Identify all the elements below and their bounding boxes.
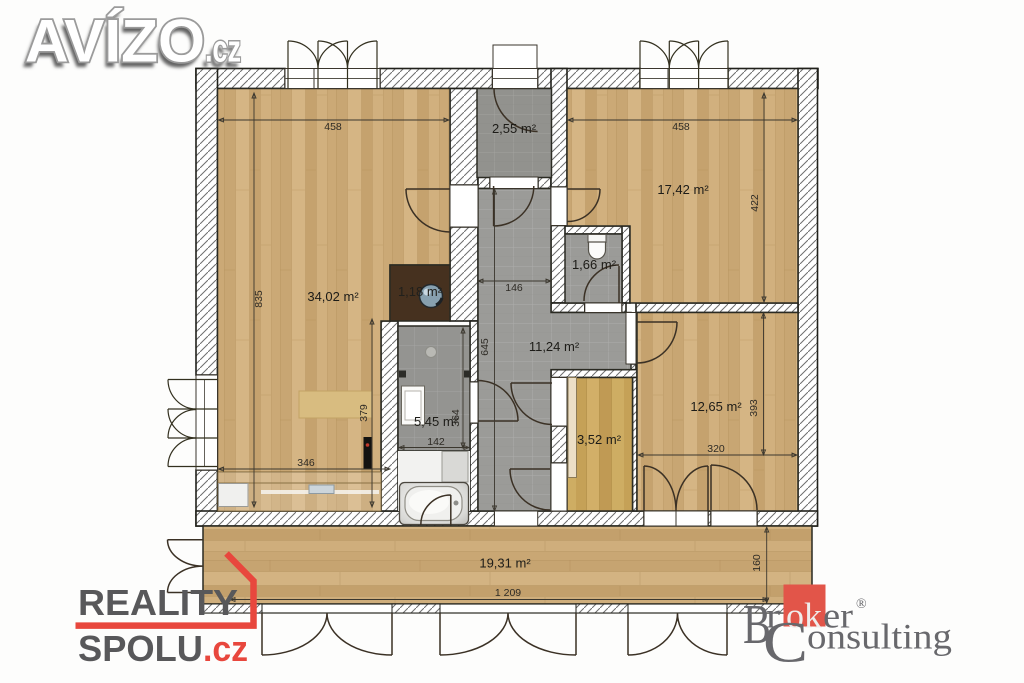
svg-text:34,02 m²: 34,02 m² (307, 289, 359, 304)
svg-text:379: 379 (358, 404, 370, 422)
svg-text:12,65 m²: 12,65 m² (690, 399, 742, 414)
svg-text:19,31 m²: 19,31 m² (479, 556, 531, 571)
svg-text:142: 142 (427, 436, 445, 448)
svg-text:onsulting: onsulting (807, 617, 952, 657)
svg-text:393: 393 (748, 399, 760, 417)
svg-text:146: 146 (505, 282, 523, 294)
svg-text:320: 320 (707, 443, 725, 455)
svg-text:2,55 m²: 2,55 m² (492, 121, 537, 136)
svg-text:®: ® (856, 597, 867, 612)
svg-text:1,66 m²: 1,66 m² (572, 257, 617, 272)
svg-text:346: 346 (297, 457, 315, 469)
svg-text:SPOLU: SPOLU (78, 628, 203, 669)
svg-text:5,45 m²: 5,45 m² (414, 414, 459, 429)
svg-text:17,42 m²: 17,42 m² (657, 182, 709, 197)
svg-text:458: 458 (672, 121, 690, 133)
svg-text:1,18 m²: 1,18 m² (398, 284, 443, 299)
svg-text:.cz: .cz (203, 628, 248, 669)
svg-text:160: 160 (751, 554, 763, 572)
svg-text:458: 458 (324, 121, 342, 133)
svg-text:AVÍZO: AVÍZO (25, 8, 205, 75)
svg-text:C: C (763, 610, 808, 675)
svg-text:.cz: .cz (205, 29, 241, 71)
svg-text:3,52 m²: 3,52 m² (577, 432, 622, 447)
svg-text:1 209: 1 209 (495, 587, 521, 599)
svg-text:835: 835 (253, 290, 265, 308)
svg-text:422: 422 (749, 194, 761, 212)
svg-text:11,24 m²: 11,24 m² (529, 339, 580, 354)
svg-text:REALITY: REALITY (78, 582, 238, 623)
svg-text:645: 645 (479, 338, 491, 356)
